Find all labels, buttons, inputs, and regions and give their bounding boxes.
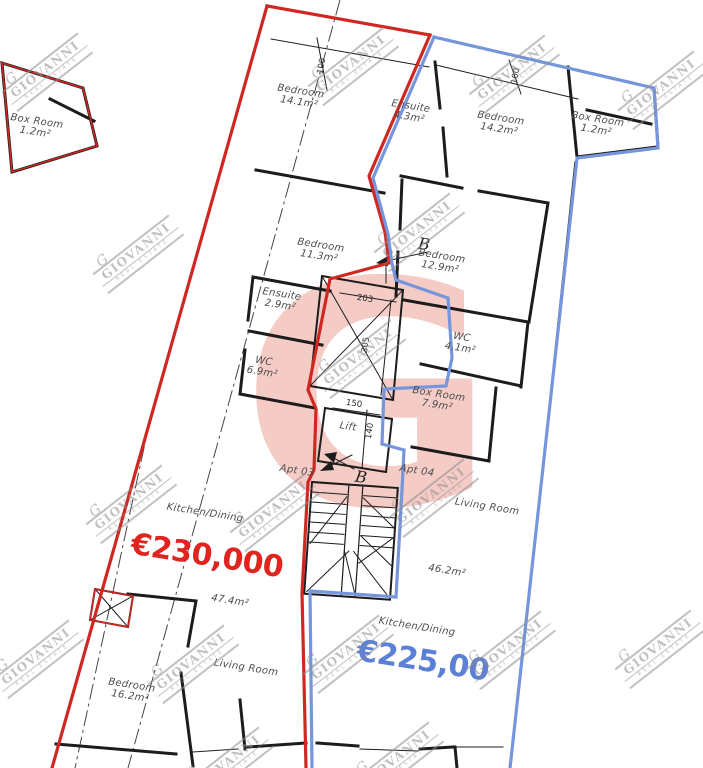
- room-label-bedroom-14-2m: Bedroom14.2m²: [475, 109, 525, 138]
- brand-watermark-name: GIOVANNI: [353, 722, 439, 768]
- brand-watermark-name: GIOVANNI: [618, 51, 703, 123]
- room-label-wc-6-9m: WC6.9m²: [246, 354, 280, 381]
- brand-watermark-0: GGIOVANNIREAL ESTATE: [0, 24, 93, 112]
- brand-watermark-name: GIOVANNI: [93, 215, 179, 287]
- room-label-bedroom-14-1m: Bedroom14.1m²: [275, 82, 325, 111]
- room-label-bedroom-11-3m: Bedroom11.3m²: [295, 236, 345, 265]
- brand-watermark-monogram: G: [149, 616, 225, 680]
- brand-watermark-tagline: REAL ESTATE: [628, 64, 703, 130]
- room-label-lift: Lift: [339, 420, 358, 434]
- brand-watermark-3: GGIOVANNIREAL ESTATE: [611, 42, 703, 130]
- brand-watermark-tagline: REAL ESTATE: [3, 633, 84, 699]
- brand-watermark-monogram: G: [316, 311, 392, 375]
- floor-plan-canvas: G: [0, 0, 703, 768]
- room-label-box-room-1-2m: Box Room1.2m²: [569, 110, 625, 140]
- brand-watermark-16: GGIOVANNIREAL ESTATE: [346, 713, 444, 768]
- price-label-apt-04: €225,00: [355, 633, 492, 688]
- dimension-label-100-1: 100: [510, 67, 523, 85]
- brand-watermark-name: GIOVANNI: [86, 465, 172, 537]
- room-label-box-room-1-2m: Box Room1.2m²: [8, 112, 64, 142]
- brand-watermark-tagline: REAL ESTATE: [625, 623, 703, 689]
- brand-watermark-tagline: REAL ESTATE: [193, 740, 274, 768]
- room-label-46-2m: 46.2m²: [427, 563, 466, 580]
- brand-watermark-tagline: REAL ESTATE: [103, 228, 184, 294]
- brand-watermark-name: GIOVANNI: [615, 610, 701, 682]
- brand-watermark-monogram: G: [375, 184, 451, 248]
- room-label-wc-4-1m: WC4.1m²: [444, 330, 478, 357]
- brand-watermark-monogram: G: [470, 26, 546, 90]
- dimension-label-203-2: 203: [356, 293, 374, 305]
- brand-watermark-monogram: G: [94, 206, 170, 270]
- room-label-ensuite-4-3m: Ensuite4.3m²: [389, 98, 431, 126]
- label-layer: Box Room1.2m²Bedroom14.1m²Ensuite4.3m²Be…: [0, 0, 703, 768]
- brand-watermark-monogram: G: [184, 718, 260, 768]
- room-label-kitchen-dining: Kitchen/Dining: [378, 616, 456, 639]
- brand-watermark-tagline: REAL ESTATE: [158, 638, 239, 704]
- brand-watermark-name: GIOVANNI: [230, 473, 316, 545]
- room-label-apt-04: Apt 04: [399, 463, 435, 479]
- brand-watermark-monogram: G: [87, 456, 163, 520]
- dimension-label-150-4: 150: [345, 398, 363, 410]
- room-label-apt-03: Apt 03: [279, 463, 315, 479]
- room-label-47-4m: 47.4m²: [210, 593, 249, 610]
- brand-watermark-tagline: REAL ESTATE: [363, 735, 444, 768]
- room-label-bedroom-16-2m: Bedroom16.2m²: [106, 676, 156, 705]
- section-marker-b-2: B: [354, 467, 369, 488]
- brand-watermark-tagline: REAL ESTATE: [240, 486, 321, 552]
- brand-watermark-14: GGIOVANNIREAL ESTATE: [0, 611, 84, 699]
- dimension-label-305-3: 305: [360, 336, 372, 354]
- brand-watermark-monogram: G: [354, 713, 430, 768]
- price-label-apt-03: €230,000: [128, 527, 285, 586]
- brand-watermark-name: GIOVANNI: [2, 33, 88, 105]
- brand-watermark-15: GGIOVANNIREAL ESTATE: [176, 718, 274, 768]
- brand-watermark-name: GIOVANNI: [183, 727, 269, 768]
- brand-watermark-monogram: G: [0, 611, 70, 675]
- brand-watermark-name: GIOVANNI: [0, 620, 79, 692]
- brand-watermark-monogram: G: [3, 24, 79, 88]
- brand-watermark-13: GGIOVANNIREAL ESTATE: [608, 601, 703, 689]
- dimension-label-140-5: 140: [364, 422, 376, 440]
- room-label-box-room-7-9m: Box Room7.9m²: [410, 385, 466, 415]
- brand-watermark-monogram: G: [616, 601, 692, 665]
- room-label-kitchen-dining: Kitchen/Dining: [166, 502, 244, 525]
- brand-watermark-4: GGIOVANNIREAL ESTATE: [86, 206, 184, 294]
- brand-watermark-name: GIOVANNI: [315, 320, 401, 392]
- brand-watermark-6: GGIOVANNIREAL ESTATE: [308, 311, 406, 399]
- room-label-living-room: Living Room: [213, 657, 279, 678]
- room-label-ensuite-2-9m: Ensuite2.9m²: [260, 286, 302, 314]
- room-label-living-room: Living Room: [454, 496, 520, 517]
- brand-watermark-tagline: REAL ESTATE: [318, 40, 399, 106]
- brand-watermark-tagline: REAL ESTATE: [12, 46, 93, 112]
- brand-watermark-9: GGIOVANNIREAL ESTATE: [381, 450, 479, 538]
- dimension-label-100-0: 100: [316, 57, 329, 75]
- brand-watermark-monogram: G: [619, 42, 695, 106]
